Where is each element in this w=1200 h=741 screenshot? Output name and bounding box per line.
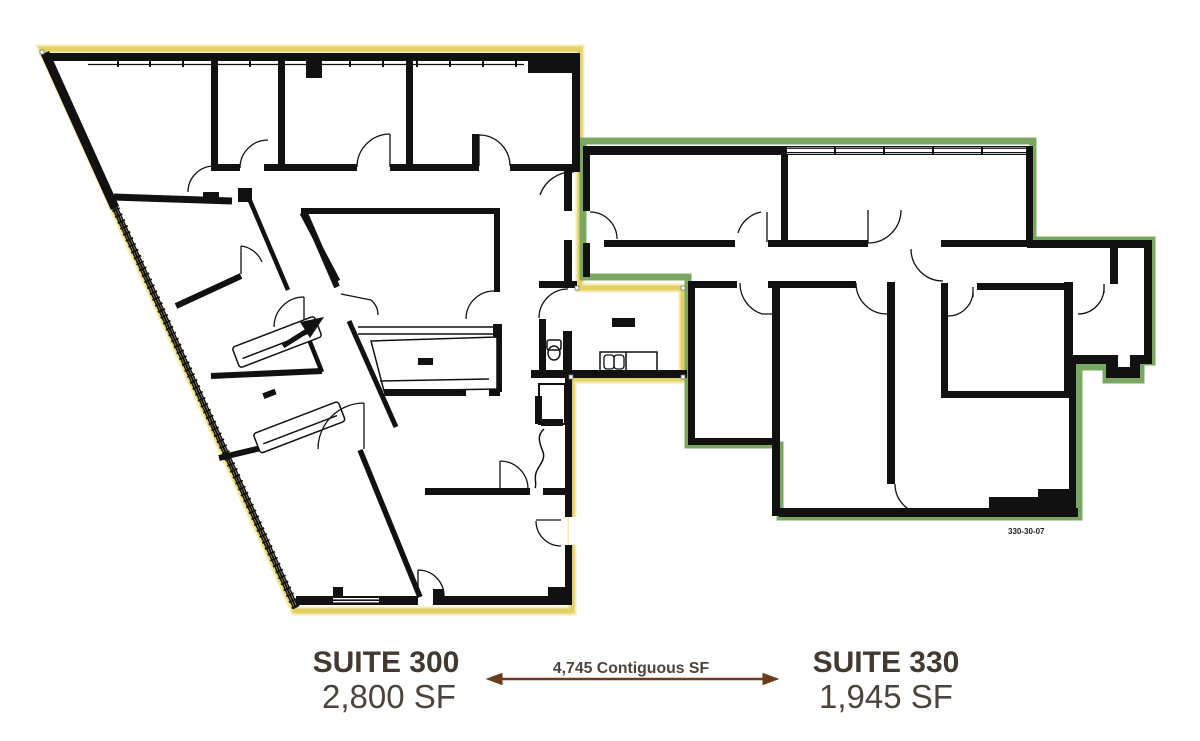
svg-text:330-30-07: 330-30-07 bbox=[1008, 527, 1045, 536]
svg-text:2,800 SF: 2,800 SF bbox=[322, 678, 456, 715]
svg-text:1,945 SF: 1,945 SF bbox=[819, 678, 953, 715]
svg-text:SUITE 330: SUITE 330 bbox=[813, 646, 960, 679]
svg-text:SUITE 300: SUITE 300 bbox=[313, 646, 460, 679]
svg-text:4,745 Contiguous SF: 4,745 Contiguous SF bbox=[553, 660, 710, 677]
